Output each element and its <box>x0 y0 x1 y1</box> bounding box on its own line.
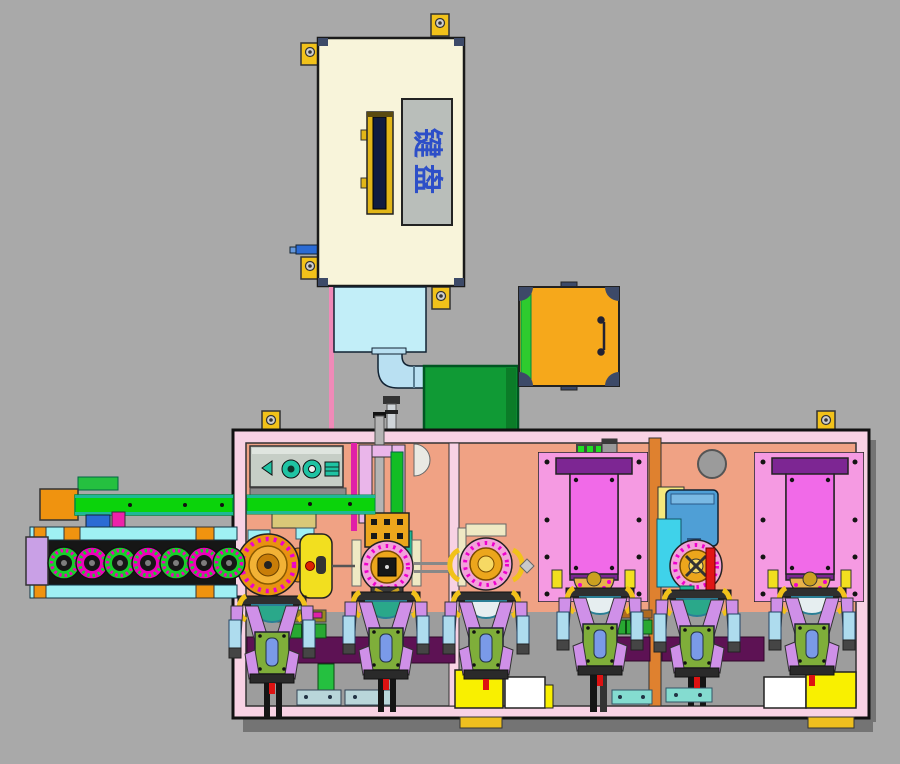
foot-pad <box>808 717 854 728</box>
chain-gear <box>48 547 80 579</box>
orange-cover <box>519 282 619 390</box>
beam-edge <box>247 495 375 498</box>
beam-edge <box>247 511 375 514</box>
guide-plate <box>466 524 506 536</box>
mounting-tab <box>301 43 319 65</box>
feed-tube-inner <box>351 443 357 531</box>
tray-strip <box>545 685 553 708</box>
fixture-plate-2 <box>754 452 864 602</box>
chain-gear <box>132 547 164 579</box>
chain-gear <box>104 547 136 579</box>
fixture-plate-1 <box>538 439 648 602</box>
vibration-chute <box>334 287 426 352</box>
chain-gear <box>160 547 192 579</box>
cad-machine-drawing: 键盘 <box>0 0 900 764</box>
station-b <box>657 487 722 600</box>
corner-cap <box>318 278 328 286</box>
corner-cap <box>454 38 464 46</box>
corner-cap <box>454 278 464 286</box>
parts-panel <box>250 446 346 496</box>
chain-gear <box>76 547 108 579</box>
chain-gear <box>213 547 245 579</box>
mounting-tab <box>431 14 449 36</box>
red-lever <box>706 548 715 590</box>
mounting-tab <box>432 287 450 309</box>
feeder-nameplate: 键盘 <box>402 99 452 225</box>
tray-white <box>764 677 806 708</box>
corner-cap <box>318 38 328 46</box>
tray-white <box>505 677 545 708</box>
chain-conveyor <box>26 477 245 598</box>
drive-block <box>40 489 78 520</box>
sensor-box <box>78 477 118 490</box>
end-block <box>26 537 48 585</box>
part-icon <box>325 462 339 476</box>
plate-hole <box>698 450 726 478</box>
mounting-tab <box>301 257 319 279</box>
clamp-blue <box>86 515 110 528</box>
foot-pad <box>460 717 502 728</box>
feeder-label-text: 键盘 <box>409 128 444 200</box>
